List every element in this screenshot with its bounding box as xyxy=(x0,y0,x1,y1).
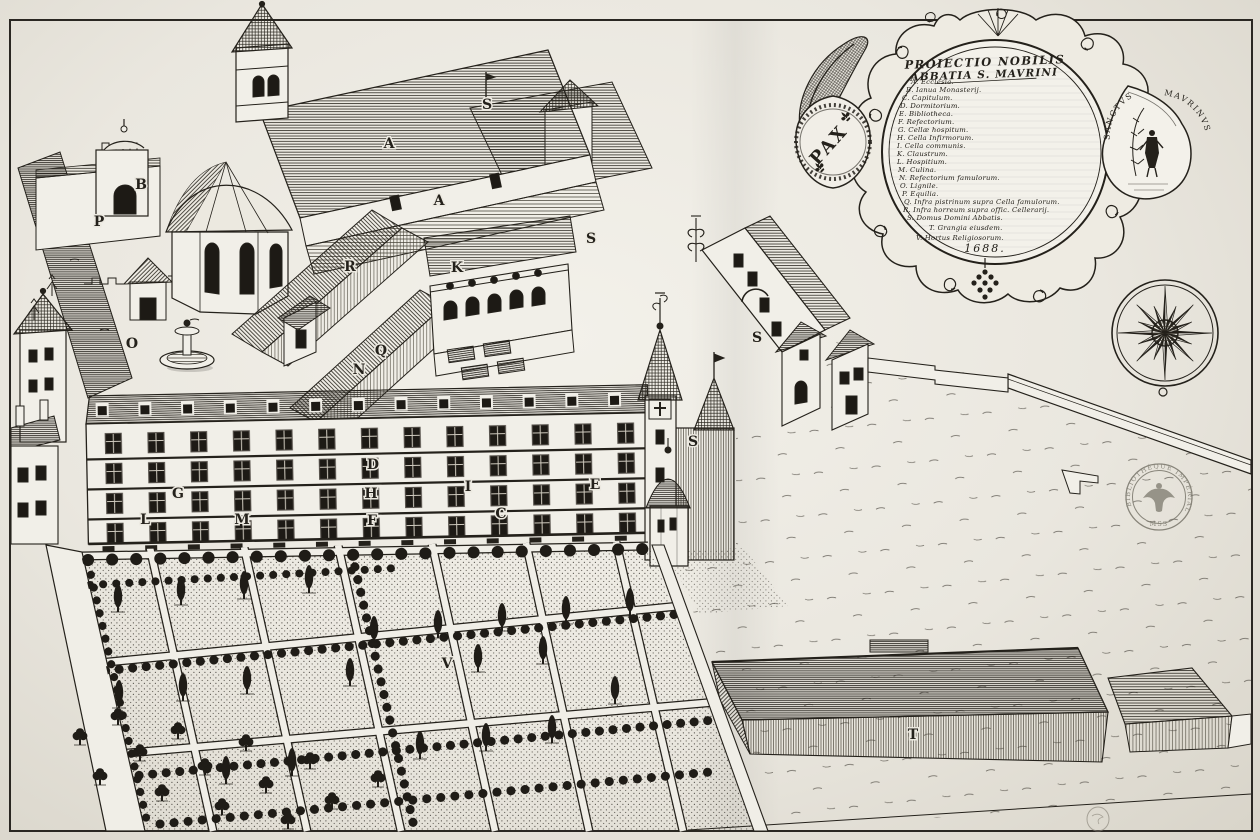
engraving-page: PAX SANCTVS MAVRINVS PROIECTIO NOBILIS A… xyxy=(0,0,1260,840)
legend-entry-V: V. Hortus Religiosorum. xyxy=(916,234,1004,242)
building-label-a-0: A xyxy=(383,136,396,152)
building-label-i-16: I xyxy=(465,479,472,495)
building-label-f-20: F xyxy=(367,513,377,529)
west-house xyxy=(11,446,58,544)
building-label-b-3: B xyxy=(135,177,147,193)
saint-medallion: SANCTVS MAVRINVS xyxy=(1103,86,1213,199)
building-label-g-14: G xyxy=(172,486,184,502)
cloister xyxy=(424,216,576,380)
legend-entry-H: H. Cella Infirmorum. xyxy=(896,134,974,142)
building-label-o-8: O xyxy=(126,336,138,352)
building-label-h-15: H xyxy=(364,486,377,502)
legend-entry-L: L. Hospitium. xyxy=(896,158,947,166)
gate-tower-b xyxy=(96,119,148,216)
building-label-d-13: D xyxy=(367,457,379,473)
cartouche: PAX SANCTVS MAVRINVS PROIECTIO NOBILIS A… xyxy=(796,8,1212,304)
building-label-a-2: A xyxy=(433,193,446,209)
building-label-s-11: S xyxy=(752,330,762,346)
building-label-s-12: S xyxy=(688,434,698,450)
legend-entry-K: K. Claustrum. xyxy=(896,150,948,158)
abbey-birdseye-engraving: PAX SANCTVS MAVRINVS PROIECTIO NOBILIS A… xyxy=(0,0,1260,840)
building-label-s-7: S xyxy=(586,231,596,247)
collection-mark xyxy=(1087,807,1109,831)
legend-entry-M: M. Culina. xyxy=(897,166,936,174)
legend-entry-O: O. Lignile. xyxy=(900,182,938,190)
stamp-mss-text: MSS xyxy=(1150,520,1169,528)
legend-entry-Q: Q. Infra pistrinum supra Cella famulorum… xyxy=(904,198,1060,206)
legend-entry-D: D. Dormitorium. xyxy=(899,102,960,110)
legend-entry-F: F. Refectorium. xyxy=(897,118,954,126)
building-label-n-10: N xyxy=(353,362,366,378)
building-label-e-17: E xyxy=(590,477,601,493)
legend-entry-G: G. Cellæ hospitum. xyxy=(898,126,968,134)
legend-entry-I: I. Cella communis. xyxy=(896,142,966,150)
legend-entry-B: B. Ianua Monasterij. xyxy=(905,86,981,94)
building-label-c-21: C xyxy=(495,506,506,522)
building-label-k-6: K xyxy=(451,260,464,276)
building-label-t-23: T xyxy=(908,727,919,743)
tall-spire xyxy=(638,330,682,400)
barn-wall xyxy=(742,712,1108,762)
fountain xyxy=(160,320,214,372)
building-label-l-18: L xyxy=(140,512,150,528)
west-corner-tower xyxy=(11,288,72,544)
cartouche-date: 1688. xyxy=(964,242,1006,255)
building-label-p-4: P xyxy=(94,214,105,230)
compass-rose-icon xyxy=(1112,280,1218,396)
garden-hortus xyxy=(46,542,768,831)
building-label-m-19: M xyxy=(234,512,250,528)
legend-entry-C: C. Capitulum. xyxy=(902,94,953,102)
building-label-v-22: V xyxy=(441,656,454,672)
legend-entry-R: R. Infra horreum supra offic. Cellerarij… xyxy=(902,206,1049,214)
bell-tower-spire xyxy=(232,4,292,52)
apse-chapel xyxy=(166,162,292,314)
church-group xyxy=(166,1,652,314)
legend-entry-S: S. Domus Domini Abbatis. xyxy=(907,214,1003,222)
legend-entry-E: E. Bibliotheca. xyxy=(898,110,953,118)
building-label-q-9: Q xyxy=(375,343,387,359)
legend-entry-N: N. Refectorium famulorum. xyxy=(898,174,1000,182)
legend-entry-P: P. Equilia. xyxy=(901,190,939,198)
legend-entry-A: A. Ecclesia. xyxy=(910,78,954,86)
building-label-r-5: R xyxy=(344,259,356,275)
building-label-s-1: S xyxy=(482,97,492,113)
legend-entry-T: T. Grangia eiusdem. xyxy=(929,224,1003,232)
